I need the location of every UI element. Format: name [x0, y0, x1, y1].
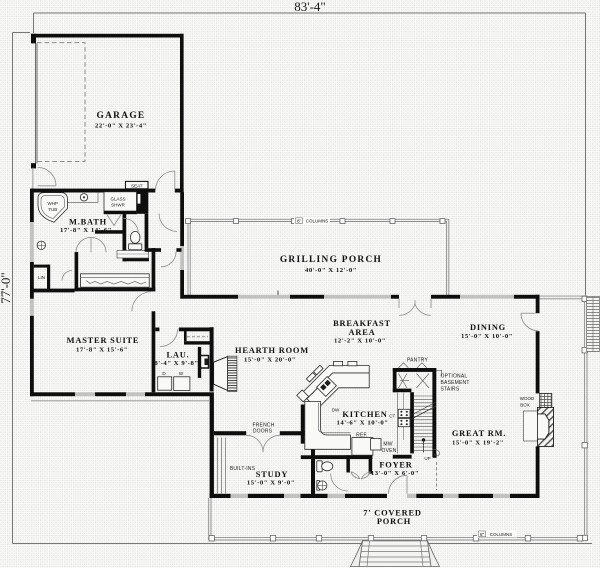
svg-text:HEARTH ROOM: HEARTH ROOM [235, 346, 309, 355]
svg-text:PORCH: PORCH [377, 517, 411, 526]
svg-text:DINING: DINING [470, 323, 506, 332]
svg-text:77'-0": 77'-0" [0, 272, 13, 303]
svg-text:CT: CT [389, 414, 395, 419]
svg-text:DW: DW [332, 407, 340, 412]
svg-text:COLUMNS: COLUMNS [306, 219, 329, 224]
svg-text:AREA: AREA [349, 328, 376, 337]
svg-text:BREAKFAST: BREAKFAST [333, 319, 391, 328]
svg-text:15'-0" X 19'-2": 15'-0" X 19'-2" [452, 439, 504, 446]
svg-text:TUB: TUB [48, 207, 57, 212]
svg-text:15'-0" X 9'-0": 15'-0" X 9'-0" [247, 480, 295, 487]
svg-text:22'-0" X 23'-4": 22'-0" X 23'-4" [95, 123, 147, 130]
svg-text:17'-8" X 14'-6": 17'-8" X 14'-6" [60, 227, 112, 234]
svg-text:LIN: LIN [38, 275, 45, 280]
svg-text:40'-0" X 12'-0": 40'-0" X 12'-0" [305, 267, 357, 274]
svg-text:12'-2" X 10'-0": 12'-2" X 10'-0" [334, 338, 386, 345]
svg-text:SHWR: SHWR [111, 203, 125, 208]
svg-text:SEAT: SEAT [131, 183, 143, 188]
svg-text:83'-4": 83'-4" [294, 0, 325, 14]
svg-text:UP: UP [424, 456, 430, 461]
svg-text:M.BATH: M.BATH [69, 218, 107, 227]
svg-text:BASEMENT: BASEMENT [441, 380, 470, 386]
svg-text:DOORS: DOORS [253, 428, 273, 434]
svg-text:8": 8" [297, 219, 302, 224]
svg-text:MW: MW [383, 441, 392, 447]
svg-text:BOX: BOX [520, 402, 530, 407]
svg-text:8": 8" [480, 532, 485, 537]
svg-text:17'-8" X 15'-6": 17'-8" X 15'-6" [76, 347, 128, 354]
svg-text:FOYER: FOYER [379, 461, 412, 470]
svg-text:MASTER SUITE: MASTER SUITE [67, 336, 140, 345]
svg-text:STUDY: STUDY [256, 470, 288, 479]
svg-text:13'-0" X 6'-0": 13'-0" X 6'-0" [371, 470, 419, 477]
svg-text:GREAT RM.: GREAT RM. [452, 429, 506, 438]
svg-text:8'-4" X 9'-8": 8'-4" X 9'-8" [154, 360, 198, 367]
svg-text:PANTRY: PANTRY [407, 358, 428, 364]
svg-text:OVEN: OVEN [382, 448, 397, 454]
svg-text:OPTIONAL: OPTIONAL [441, 373, 468, 379]
svg-text:STAIRS: STAIRS [441, 387, 460, 393]
svg-text:GARAGE: GARAGE [97, 111, 146, 121]
svg-text:GRILLING PORCH: GRILLING PORCH [280, 255, 382, 265]
svg-text:BUILT-INS: BUILT-INS [230, 466, 256, 472]
svg-text:KITCHEN: KITCHEN [342, 410, 387, 419]
svg-text:GLASS: GLASS [110, 197, 125, 202]
svg-text:15'-0" X 20'-0": 15'-0" X 20'-0" [244, 356, 296, 363]
svg-text:14'-6" X 10'-0": 14'-6" X 10'-0" [336, 420, 388, 427]
svg-text:LAU.: LAU. [167, 351, 190, 360]
svg-text:WHP: WHP [48, 201, 59, 206]
svg-text:COLUMNS: COLUMNS [490, 532, 513, 537]
svg-text:WOOD: WOOD [520, 396, 535, 401]
svg-text:15'-0" X 10'-0": 15'-0" X 10'-0" [461, 333, 513, 340]
